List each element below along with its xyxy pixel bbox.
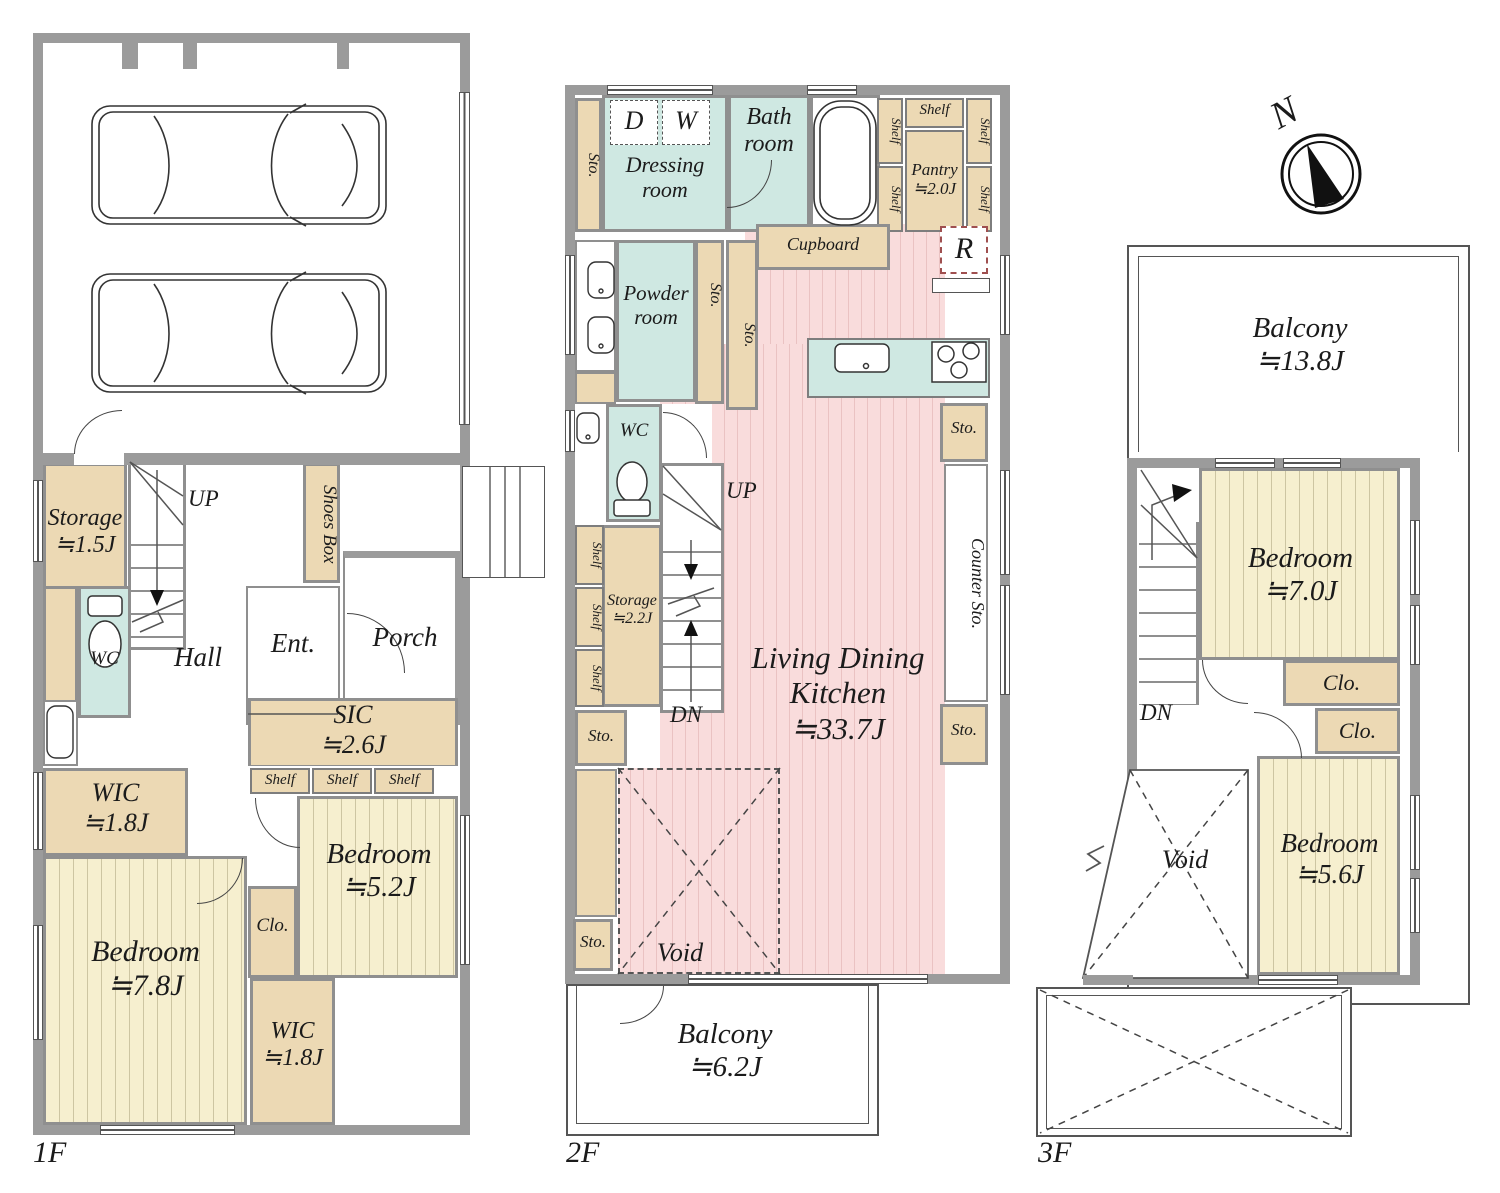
- window: [607, 85, 713, 95]
- garage-pillar: [183, 43, 197, 69]
- shelf-label: Shelf: [877, 168, 903, 230]
- sto-label: Sto.: [575, 104, 602, 226]
- void-3f-label: Void: [1130, 845, 1240, 875]
- sto-label: Sto.: [567, 932, 619, 951]
- cupboard-label: Cupboard: [756, 234, 890, 255]
- shelf-label: Shelf: [877, 100, 903, 162]
- stairs-1f-treads: [131, 523, 183, 647]
- window: [1410, 520, 1420, 595]
- bedroom-5_6-label: Bedroom≒5.6J: [1262, 828, 1397, 890]
- window: [33, 480, 43, 562]
- wic-left-label: WIC≒1.8J: [43, 778, 188, 837]
- dressing-room-label: Dressingroom: [602, 152, 728, 202]
- entrance-approach: [462, 466, 545, 578]
- sto-label: Sto.: [726, 295, 758, 375]
- void-wall-stub: [1083, 975, 1133, 985]
- window: [460, 815, 470, 965]
- under-stair-closet: [575, 372, 616, 404]
- closet-1f-label: Clo.: [248, 915, 297, 937]
- north-compass-icon: [1282, 135, 1360, 213]
- floor2-tag: 2F: [566, 1136, 636, 1170]
- shelf-label: Shelf: [966, 168, 992, 230]
- ldk-label: Living DiningKitchen≒33.7J: [733, 640, 943, 746]
- up-label-2f: UP: [726, 478, 757, 504]
- garage-door-opening: [74, 453, 124, 465]
- hall-label: Hall: [148, 642, 248, 673]
- up-label-1f: UP: [188, 486, 219, 512]
- utility-nook: [43, 700, 78, 766]
- kitchen-counter: [807, 338, 990, 398]
- dn-label-3f: DN: [1140, 700, 1172, 726]
- north-label: N: [1263, 89, 1306, 139]
- balcony-3f-label: Balcony≒13.8J: [1225, 312, 1375, 378]
- window: [1215, 458, 1275, 468]
- kitchen-counter-end: [932, 278, 990, 293]
- shelf-label: Shelf: [575, 527, 604, 583]
- window: [1410, 605, 1420, 665]
- wc-1f-cabinet: [43, 586, 78, 718]
- window: [565, 410, 575, 452]
- wic-bottom-label: WIC≒1.8J: [250, 1018, 335, 1073]
- floor1-tag: 1F: [33, 1136, 103, 1170]
- tall-cabinet: [575, 769, 617, 917]
- window: [1410, 878, 1420, 933]
- shelf-label: Shelf: [905, 102, 964, 119]
- stairs-3f-treads: [1139, 522, 1199, 705]
- entrance-label: Ent.: [246, 628, 340, 659]
- sto-label: Sto.: [940, 720, 988, 739]
- stairs-2f-treads: [663, 530, 721, 710]
- shelf-label: Shelf: [575, 651, 604, 705]
- wc-1f-label: WC: [78, 648, 131, 670]
- garage-pillar: [122, 43, 138, 69]
- garage-gate-opening: [459, 92, 470, 425]
- pantry-label: Pantry≒2.0J: [905, 160, 964, 199]
- refrigerator-label: R: [940, 232, 988, 266]
- shelf-label: Shelf: [312, 772, 372, 789]
- closet-3f-label: Clo.: [1315, 718, 1400, 743]
- bathroom-label: Bathroom: [728, 104, 810, 159]
- roof-inner-line: [1046, 995, 1342, 1129]
- washer-label: W: [662, 106, 710, 136]
- wc-2f-label: WC: [606, 420, 662, 442]
- void-2f-label: Void: [630, 938, 730, 968]
- sic-label: SIC≒2.6J: [248, 700, 458, 759]
- window: [1283, 458, 1341, 468]
- sto-label: Sto.: [575, 726, 627, 745]
- window: [1258, 975, 1338, 985]
- sto-label: Sto.: [940, 418, 988, 437]
- balcony-2f-label: Balcony≒6.2J: [640, 1018, 810, 1084]
- window: [1000, 255, 1010, 335]
- porch-label: Porch: [355, 622, 455, 653]
- window: [688, 974, 928, 984]
- void-3f-break: [1086, 846, 1104, 871]
- floor3-tag: 3F: [1038, 1136, 1108, 1170]
- counter-sto-label: Counter Sto.: [944, 474, 988, 694]
- window: [33, 925, 43, 1040]
- shelf-label: Shelf: [374, 772, 434, 789]
- window: [1000, 585, 1010, 695]
- bedroom-5_2-label: Bedroom≒5.2J: [300, 838, 458, 904]
- window: [33, 772, 43, 850]
- window: [807, 85, 857, 95]
- shelf-label: Shelf: [966, 100, 992, 162]
- bathtub-area: [810, 95, 880, 232]
- dryer-label: D: [610, 106, 658, 136]
- floor-plan-canvas: Storage≒1.5J UP Shoes Box WC Hall Ent. P…: [0, 0, 1500, 1193]
- closet-3f-label: Clo.: [1283, 670, 1400, 695]
- powder-room-label: Powderroom: [616, 282, 696, 330]
- garage-pillar: [337, 43, 349, 69]
- dn-label-2f: DN: [670, 702, 702, 728]
- bedroom-7_8-label: Bedroom≒7.8J: [48, 935, 243, 1003]
- shoes-box-label: Shoes Box: [303, 468, 340, 580]
- storage-2f-label: Storage≒2.2J: [602, 592, 662, 628]
- shelf-label: Shelf: [575, 589, 604, 645]
- window: [1410, 795, 1420, 870]
- vanity-counter: [575, 240, 616, 372]
- shelf-label: Shelf: [250, 772, 310, 789]
- window: [100, 1125, 235, 1135]
- storage-1f-label: Storage≒1.5J: [43, 505, 127, 560]
- bedroom-7_0-label: Bedroom≒7.0J: [1228, 542, 1373, 608]
- sto-label: Sto.: [695, 255, 724, 335]
- window: [1000, 470, 1010, 575]
- window: [565, 255, 575, 355]
